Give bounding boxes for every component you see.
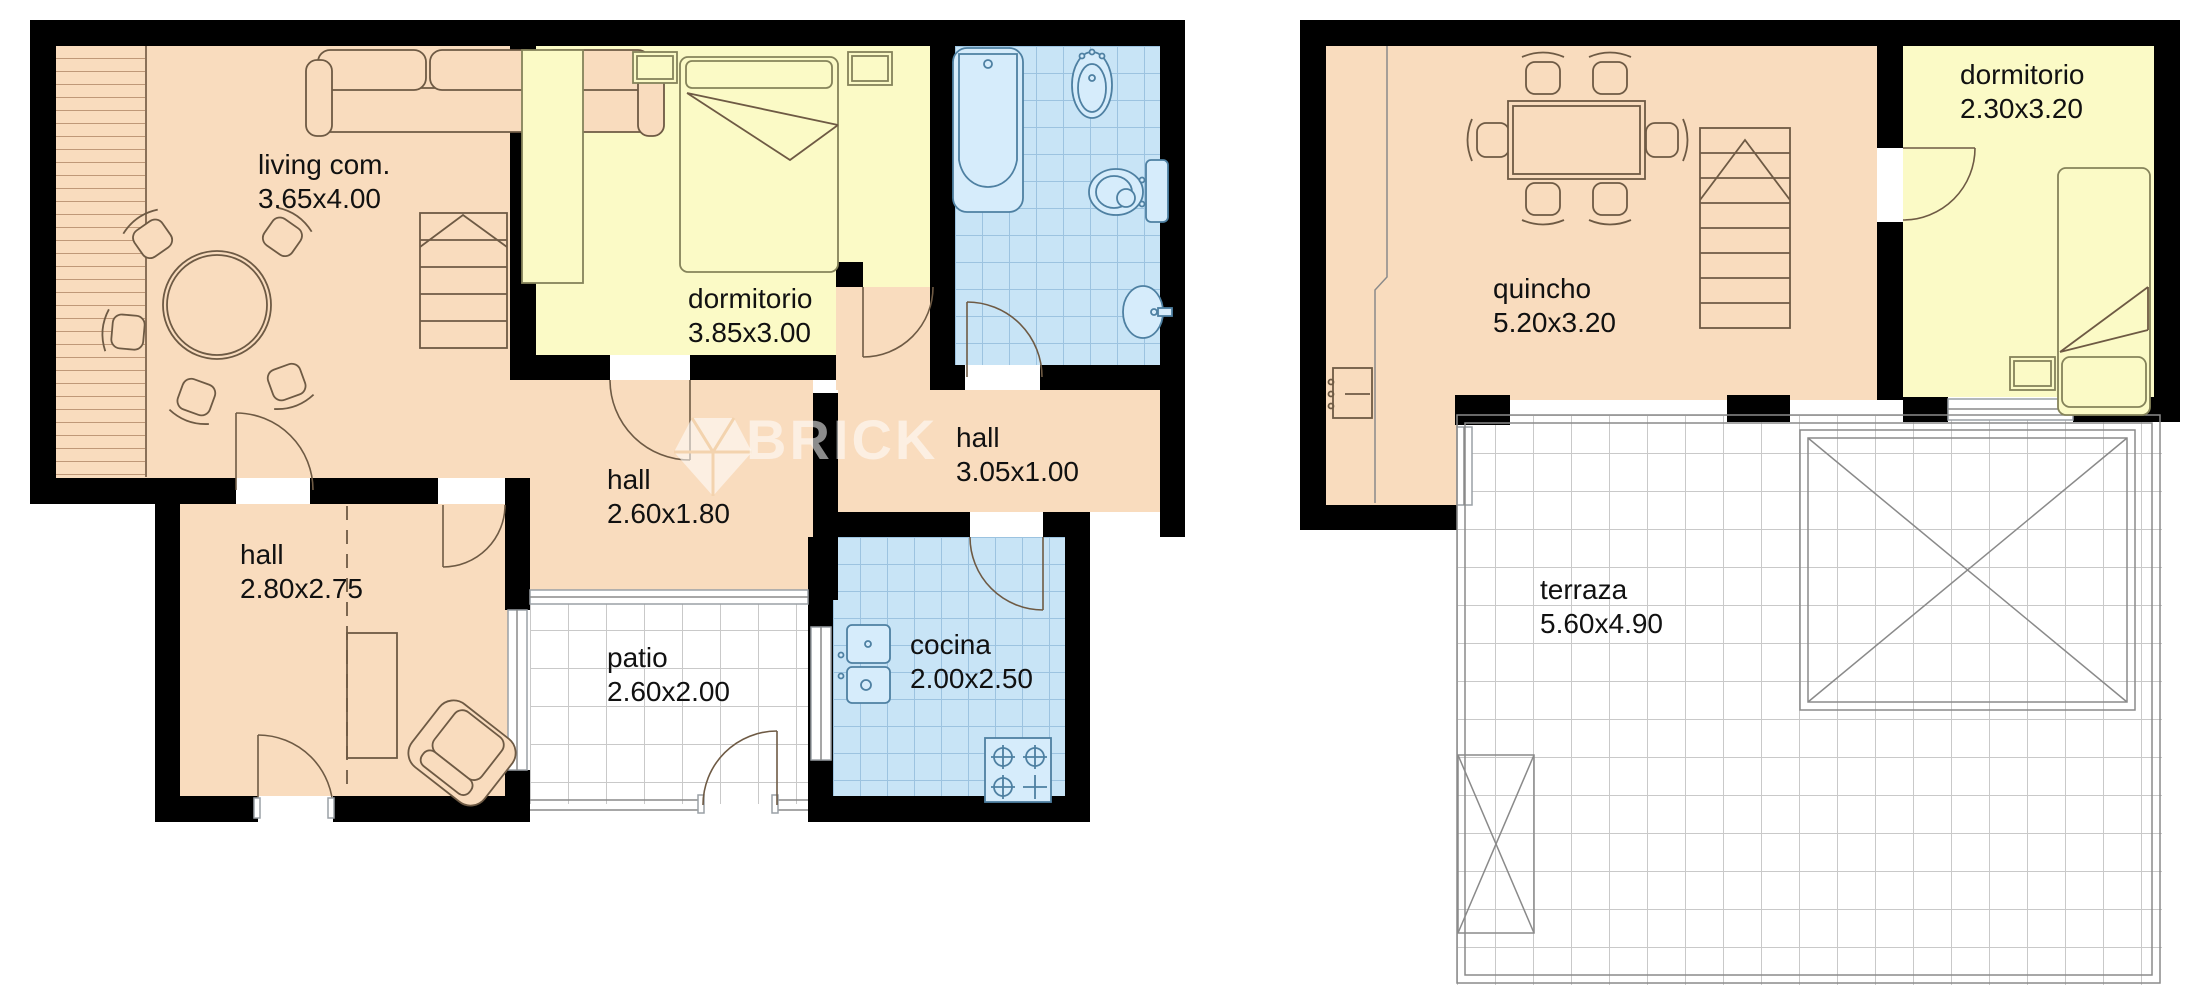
hall-lower-items xyxy=(347,506,523,813)
label-living: living com. 3.65x4.00 xyxy=(258,148,390,216)
label-cocina: cocina 2.00x2.50 xyxy=(910,628,1033,696)
room-dims: 2.60x1.80 xyxy=(607,497,730,531)
room-name: dormitorio xyxy=(1960,58,2084,92)
patio-fence xyxy=(530,795,808,813)
room-name: living com. xyxy=(258,148,390,182)
label-dormitorio-2: dormitorio 2.30x3.20 xyxy=(1960,58,2084,126)
room-dims: 3.85x3.00 xyxy=(688,316,812,350)
brick-watermark-text: BRICK xyxy=(746,407,938,472)
label-patio: patio 2.60x2.00 xyxy=(607,641,730,709)
room-name: hall xyxy=(607,463,730,497)
bed-single xyxy=(2058,168,2150,415)
label-hall-lower: hall 2.80x2.75 xyxy=(240,538,363,606)
room-name: hall xyxy=(956,421,1079,455)
nightstand-right xyxy=(848,52,892,85)
label-quincho: quincho 5.20x3.20 xyxy=(1493,272,1616,340)
room-name: patio xyxy=(607,641,730,675)
label-hall-small: hall 3.05x1.00 xyxy=(956,421,1079,489)
sofa xyxy=(306,50,664,136)
door-dormitorio1-vestibule xyxy=(863,287,933,357)
stove xyxy=(985,738,1051,802)
stairs-quincho xyxy=(1700,128,1790,328)
room-name: hall xyxy=(240,538,363,572)
nightstand-left xyxy=(633,52,677,83)
bed-double xyxy=(680,57,838,272)
door-hall-lower-hall-upper xyxy=(443,505,505,567)
stairs-living xyxy=(420,213,507,348)
nightstand-dormitorio2 xyxy=(2010,357,2055,390)
room-dims: 2.30x3.20 xyxy=(1960,92,2084,126)
floor-plan-canvas: BRICK living com. 3.65x4.00 dormitorio 3… xyxy=(0,0,2200,1006)
label-dormitorio-1: dormitorio 3.85x3.00 xyxy=(688,282,812,350)
bidet xyxy=(1072,50,1112,119)
door-living-hall xyxy=(236,413,313,490)
door-quincho-dormitorio2 xyxy=(1903,148,1975,220)
label-terraza: terraza 5.60x4.90 xyxy=(1540,573,1663,641)
room-name: quincho xyxy=(1493,272,1616,306)
label-hall-upper: hall 2.60x1.80 xyxy=(607,463,730,531)
room-dims: 3.05x1.00 xyxy=(956,455,1079,489)
door-patio-gate xyxy=(703,731,777,805)
toilet xyxy=(1089,160,1168,222)
room-dims: 3.65x4.00 xyxy=(258,182,390,216)
door-cocina xyxy=(970,537,1043,610)
quincho-table xyxy=(1468,53,1688,225)
room-dims: 2.60x2.00 xyxy=(607,675,730,709)
room-dims: 5.60x4.90 xyxy=(1540,607,1663,641)
room-dims: 2.80x2.75 xyxy=(240,572,363,606)
room-name: terraza xyxy=(1540,573,1663,607)
room-name: dormitorio xyxy=(688,282,812,316)
door-bathroom xyxy=(967,302,1042,377)
quincho-sink xyxy=(1329,368,1373,418)
bathtub xyxy=(953,48,1023,212)
room-dims: 5.20x3.20 xyxy=(1493,306,1616,340)
door-entrance-hall-lower xyxy=(254,735,334,818)
terraza-borders xyxy=(1375,46,2160,983)
wardrobe xyxy=(522,50,583,283)
kitchen-sink xyxy=(839,625,891,703)
dining-table-round xyxy=(101,204,315,428)
room-dims: 2.00x2.50 xyxy=(910,662,1033,696)
room-name: cocina xyxy=(910,628,1033,662)
